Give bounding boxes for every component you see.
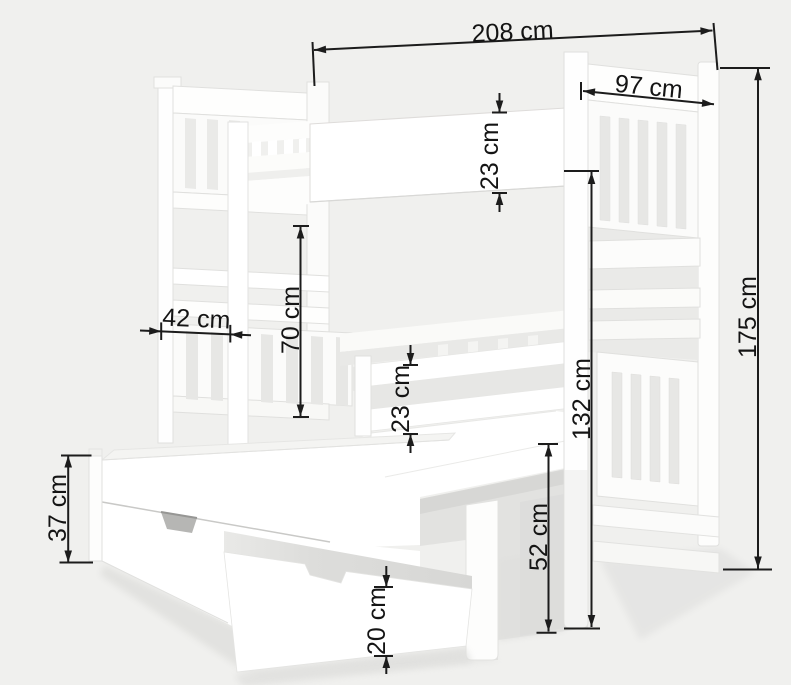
svg-text:70 cm: 70 cm (277, 286, 305, 354)
svg-text:175 cm: 175 cm (734, 276, 762, 358)
svg-text:20 cm: 20 cm (363, 587, 391, 655)
svg-text:23 cm: 23 cm (476, 122, 504, 190)
svg-text:52 cm: 52 cm (525, 503, 553, 571)
svg-text:132 cm: 132 cm (568, 358, 596, 440)
svg-text:37 cm: 37 cm (44, 474, 72, 542)
svg-text:42 cm: 42 cm (162, 304, 231, 335)
svg-text:208 cm: 208 cm (471, 16, 554, 48)
svg-text:23 cm: 23 cm (387, 365, 415, 433)
